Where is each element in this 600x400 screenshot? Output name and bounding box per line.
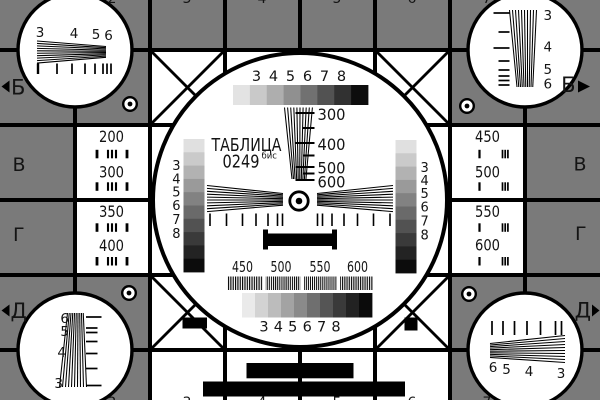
grayscale-step [359, 293, 372, 318]
grayscale-label: 3 [259, 320, 268, 336]
grayscale-step [184, 139, 205, 153]
grayscale-step [333, 293, 346, 318]
wedge-line [490, 351, 565, 352]
resolution-tick [107, 182, 109, 191]
wedge-line [37, 51, 106, 52]
grayscale-step [184, 232, 205, 246]
grayscale-label: 4 [269, 69, 278, 85]
grayscale-label: 8 [172, 227, 180, 242]
burst-label: 600 [347, 258, 368, 276]
grayscale-label: 7 [320, 69, 329, 85]
line-scale-label: 600 [318, 173, 346, 192]
target-icon [128, 102, 133, 107]
grayscale-step [396, 153, 417, 167]
grayscale-label: 6 [303, 69, 312, 85]
wedge-label: 3 [54, 376, 63, 392]
resolution-tick [478, 150, 480, 159]
resolution-tick [502, 257, 504, 266]
resolution-tick [96, 150, 99, 159]
black-rectangle-mark-left [183, 318, 208, 329]
row-letter-left-g: Г [13, 224, 25, 246]
grayscale-step [184, 219, 205, 233]
resolution-tick [507, 182, 509, 191]
column-number-fragment: 2 [108, 0, 117, 7]
grayscale-step [267, 85, 284, 105]
frequency-burst [304, 277, 337, 291]
res-label-500: 500 [475, 163, 500, 182]
resolution-tick [504, 257, 506, 266]
grayscale-step [396, 207, 417, 221]
wedge-label: 3 [36, 25, 45, 41]
line-scale-label: 300 [318, 105, 346, 124]
resolution-tick [502, 182, 504, 191]
grayscale-label: 7 [421, 215, 429, 230]
frequency-burst [227, 277, 263, 291]
resolution-tick [111, 150, 113, 159]
center-target-icon [296, 198, 303, 205]
resolution-tick [507, 257, 509, 266]
grayscale-step [301, 85, 318, 105]
resolution-tick [502, 223, 504, 232]
black-square-mark-right [405, 318, 418, 331]
corner-circle-top-left [18, 0, 132, 107]
frequency-burst [340, 277, 374, 291]
column-number-fragment: 5 [333, 395, 342, 400]
resolution-tick [126, 182, 129, 191]
resolution-tick [507, 150, 509, 159]
grayscale-step [294, 293, 307, 318]
grayscale-label: 5 [288, 320, 297, 336]
row-letter-right-b: Б [561, 73, 575, 97]
grayscale-step [268, 293, 281, 318]
column-number-fragment: 2 [108, 395, 117, 400]
grayscale-step [184, 152, 205, 166]
target-icon [467, 292, 472, 297]
grayscale-step [396, 246, 417, 260]
res-label-600: 600 [475, 236, 500, 255]
resolution-tick [107, 257, 109, 266]
wedge-label: 3 [544, 8, 553, 24]
grayscale-label: 6 [172, 199, 180, 214]
grayscale-step [184, 192, 205, 206]
resolution-tick [502, 150, 504, 159]
wedge-line [78, 313, 79, 387]
res-label-200: 200 [99, 127, 124, 146]
resolution-tick [111, 257, 113, 266]
resolution-tick [96, 182, 99, 191]
frequency-burst [266, 277, 301, 291]
grayscale-step [284, 85, 301, 105]
row-letter-right-d: Д [575, 299, 591, 323]
resolution-tick [478, 257, 480, 266]
row-letter-left-b: Б [11, 76, 25, 100]
column-number-fragment: 4 [258, 0, 267, 7]
reference-black-bar [263, 234, 337, 247]
grayscale-step [255, 293, 268, 318]
grayscale-label: 3 [252, 69, 261, 85]
resolution-tick [107, 223, 109, 232]
target-icon [127, 291, 132, 296]
wedge-line [490, 353, 565, 354]
row-letter-left-v: В [13, 154, 26, 176]
resolution-tick [524, 182, 526, 191]
grayscale-label: 7 [317, 320, 326, 336]
wedge-label: 5 [92, 27, 101, 43]
grayscale-label: 4 [274, 320, 283, 336]
row-letter-left-d: Д [11, 299, 27, 323]
grayscale-step [281, 293, 294, 318]
grayscale-step [320, 293, 333, 318]
test-card-0249: 3456 3456 6543 6543 34567830040050060034… [0, 0, 600, 400]
resolution-tick [115, 150, 117, 159]
column-number-fragment: 6 [408, 395, 417, 400]
wedge-label: 6 [489, 360, 498, 376]
wedge-label: 4 [525, 364, 534, 380]
wedge-label: 5 [60, 324, 69, 340]
grayscale-step [184, 206, 205, 220]
bottom-black-bar-short [247, 363, 354, 378]
grayscale-step [307, 293, 320, 318]
res-label-450: 450 [475, 127, 500, 146]
res-label-300: 300 [99, 163, 124, 182]
wedge-label: 4 [70, 26, 79, 42]
resolution-tick [126, 150, 129, 159]
column-number-fragment: 3 [183, 0, 192, 7]
grayscale-step [250, 85, 267, 105]
target-icon [465, 104, 470, 109]
column-number-fragment: 6 [408, 0, 417, 7]
grayscale-step [184, 179, 205, 193]
resolution-tick [507, 223, 509, 232]
grayscale-step [242, 293, 255, 318]
grayscale-step [396, 220, 417, 234]
grayscale-label: 6 [303, 320, 312, 336]
wedge-label: 6 [104, 28, 113, 44]
resolution-tick [107, 150, 109, 159]
column-number-fragment: 3 [183, 395, 192, 400]
wedge-line [80, 313, 81, 387]
resolution-tick [478, 182, 480, 191]
grayscale-step [396, 167, 417, 181]
test-card-screen: 3456 3456 6543 6543 34567830040050060034… [0, 0, 600, 400]
column-number-fragment: 7 [483, 395, 492, 400]
resolution-tick [524, 223, 526, 232]
grayscale-step [396, 260, 417, 274]
grayscale-step [396, 193, 417, 207]
grayscale-label: 8 [421, 229, 429, 244]
column-number-fragment: 5 [333, 0, 342, 7]
column-number-fragment: 7 [483, 0, 492, 7]
grayscale-step [233, 85, 250, 105]
column-number-fragment: 4 [258, 395, 267, 400]
resolution-tick [504, 223, 506, 232]
wedge-label: 5 [502, 362, 511, 378]
grayscale-step [334, 85, 351, 105]
resolution-tick [96, 223, 99, 232]
res-label-550: 550 [475, 202, 500, 221]
resolution-tick [115, 182, 117, 191]
grayscale-step [184, 259, 205, 273]
resolution-tick [111, 182, 113, 191]
resolution-tick [478, 223, 480, 232]
resolution-tick [524, 257, 526, 266]
grayscale-step [184, 245, 205, 259]
wedge-label: 4 [544, 40, 553, 56]
grayscale-step [184, 166, 205, 180]
grayscale-step [351, 85, 368, 105]
grayscale-step [396, 180, 417, 194]
grayscale-step [396, 233, 417, 247]
bottom-black-bar-long [203, 382, 405, 397]
resolution-tick [126, 223, 129, 232]
grayscale-label: 8 [337, 69, 346, 85]
resolution-tick [504, 182, 506, 191]
grayscale-step [396, 140, 417, 154]
line-scale-label: 400 [318, 135, 346, 154]
res-label-400: 400 [99, 236, 124, 255]
resolution-tick [96, 257, 99, 266]
burst-label: 550 [310, 258, 331, 276]
grayscale-label: 7 [172, 213, 180, 228]
wedge-label: 6 [544, 77, 553, 93]
wedge-line [37, 53, 106, 54]
wedge-label: 3 [557, 366, 566, 382]
card-number-suffix: бис [262, 152, 278, 162]
grayscale-label: 8 [331, 320, 340, 336]
row-letter-right-v: В [574, 154, 587, 176]
resolution-tick [115, 257, 117, 266]
burst-label: 500 [271, 258, 292, 276]
res-label-350: 350 [99, 202, 124, 221]
card-number: 0249 [223, 153, 260, 173]
resolution-tick [115, 223, 117, 232]
grayscale-label: 6 [421, 201, 429, 216]
grayscale-step [317, 85, 334, 105]
resolution-tick [111, 223, 113, 232]
resolution-tick [524, 150, 526, 159]
wedge-label: 4 [57, 345, 66, 361]
grayscale-step [346, 293, 359, 318]
resolution-tick [126, 257, 129, 266]
burst-label: 450 [232, 258, 253, 276]
grayscale-label: 5 [286, 69, 295, 85]
resolution-tick [504, 150, 506, 159]
row-letter-right-g: Г [575, 223, 587, 245]
